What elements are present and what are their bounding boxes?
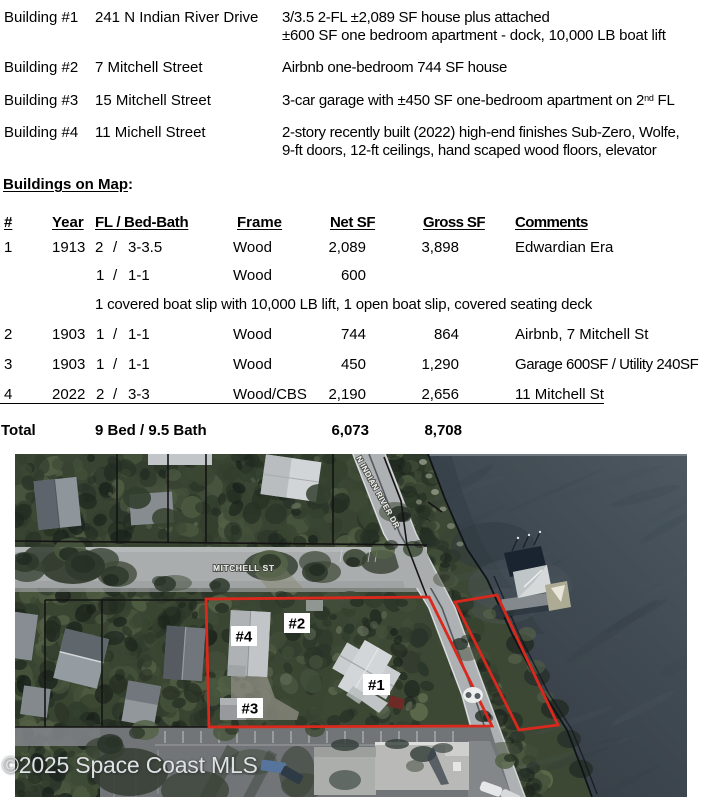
svg-text:#1: #1: [368, 677, 385, 694]
svg-text:#2: #2: [289, 616, 306, 633]
svg-text:MITCHELL ST: MITCHELL ST: [213, 563, 275, 573]
svg-text:#4: #4: [236, 629, 253, 646]
svg-text:#3: #3: [242, 701, 259, 718]
